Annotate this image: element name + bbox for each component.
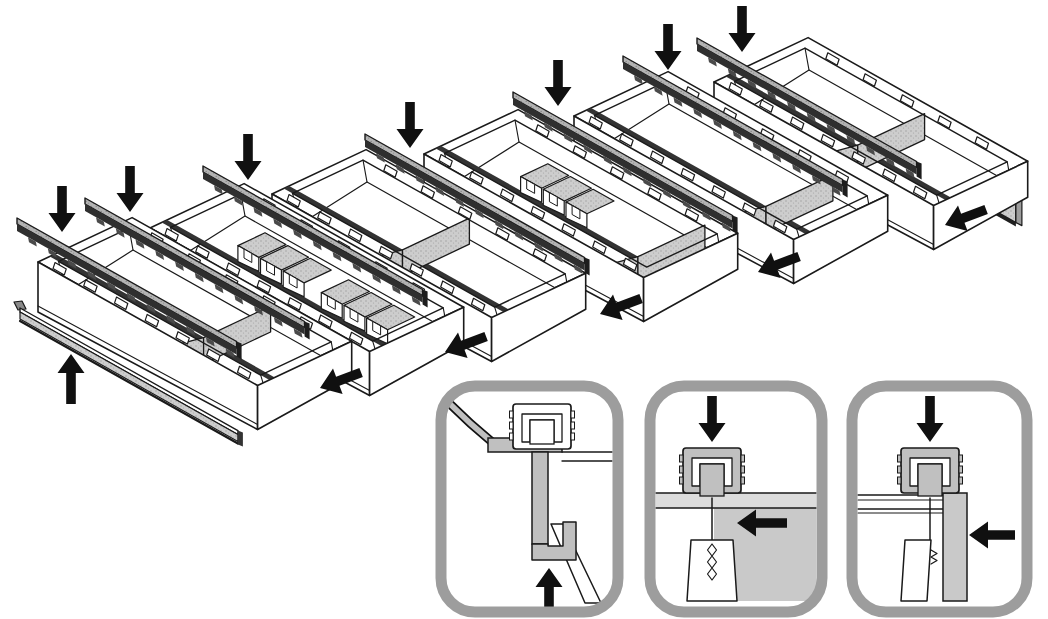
rail-end-cap — [423, 290, 428, 308]
trim-flange — [450, 404, 492, 442]
clamp-rib — [898, 455, 902, 462]
side-panel-clamp-detail — [858, 396, 1015, 601]
side-panel-section — [943, 493, 967, 601]
rail-end-cap — [305, 322, 310, 340]
front-trim-hook-detail — [450, 404, 612, 608]
insert-down-arrow — [545, 60, 572, 106]
clamp-rib — [741, 477, 745, 484]
diagram-canvas — [0, 0, 1048, 619]
left-arrow — [969, 522, 1015, 549]
clamp-rib — [680, 455, 684, 462]
divider-wall-clamp-detail — [656, 396, 816, 601]
divider-zigzag-slot — [708, 544, 717, 580]
clamp-rib — [741, 455, 745, 462]
trim-rail-end-cap — [238, 431, 243, 447]
clamp-rib — [571, 433, 575, 440]
clamp-rib — [510, 433, 514, 440]
attach-up-arrow — [58, 354, 85, 404]
insert-down-arrow — [49, 186, 76, 232]
insert-down-arrow — [397, 102, 424, 148]
clamp-rib — [680, 466, 684, 473]
wall-hook-squiggle — [931, 550, 937, 564]
clamp-rib — [898, 466, 902, 473]
rail-end-cap — [917, 162, 922, 180]
insert-down-arrow — [235, 134, 262, 180]
clamp-rib — [898, 477, 902, 484]
clamp-center-stem — [918, 464, 942, 496]
down-arrow — [699, 396, 726, 442]
clamp-center-stem — [530, 420, 554, 444]
up-arrow — [536, 568, 563, 608]
assembly-diagram — [0, 0, 1048, 619]
down-arrow — [917, 396, 944, 442]
clamp-rib — [959, 455, 963, 462]
clamp-rib — [571, 411, 575, 418]
clamp-center-stem — [700, 464, 724, 496]
detail-insets-group — [441, 386, 1027, 612]
trim-vertical-web — [532, 452, 548, 544]
rail-end-cap — [237, 342, 242, 360]
rail-end-cap — [585, 258, 590, 276]
insert-down-arrow — [655, 24, 682, 70]
clamp-rib — [510, 411, 514, 418]
clamp-rib — [510, 422, 514, 429]
clamp-rib — [959, 466, 963, 473]
rim-band — [656, 493, 816, 508]
clamp-rib — [741, 466, 745, 473]
rail-end-cap — [733, 216, 738, 234]
clamp-rib — [959, 477, 963, 484]
tray-wall-section — [901, 540, 931, 601]
insert-down-arrow — [729, 6, 756, 52]
clamp-rib — [680, 477, 684, 484]
clamp-rib — [571, 422, 575, 429]
side-panel-clamp-detail-border — [852, 386, 1027, 612]
insert-down-arrow — [117, 166, 144, 212]
rail-end-cap — [843, 180, 848, 198]
